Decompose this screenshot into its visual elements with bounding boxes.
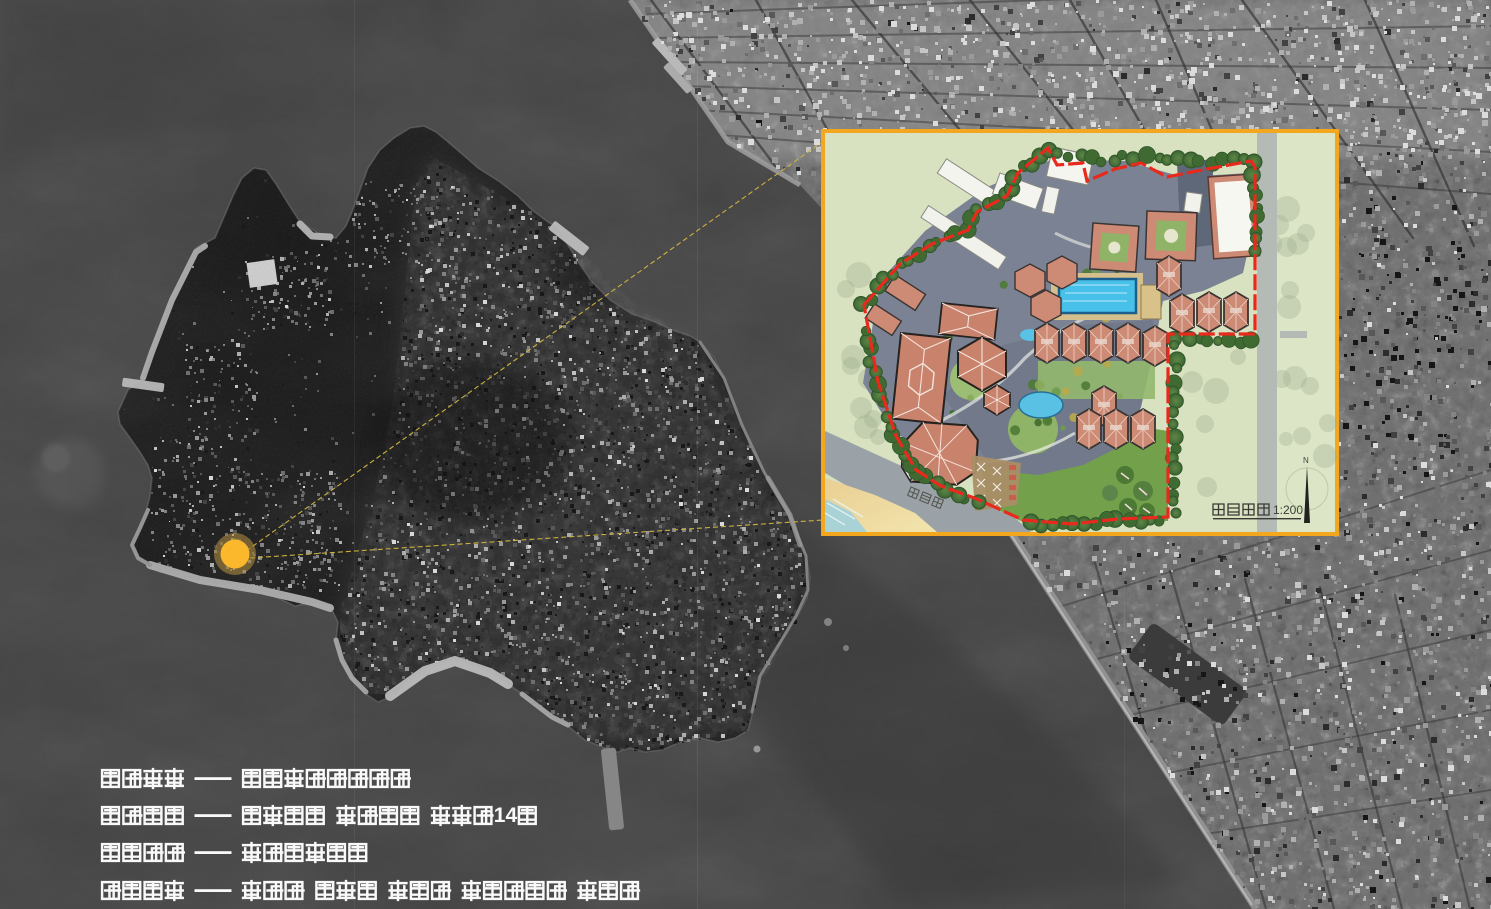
svg-text:14: 14 [494, 804, 518, 827]
svg-text:1:200: 1:200 [1273, 503, 1303, 517]
svg-text:N: N [1303, 456, 1309, 465]
